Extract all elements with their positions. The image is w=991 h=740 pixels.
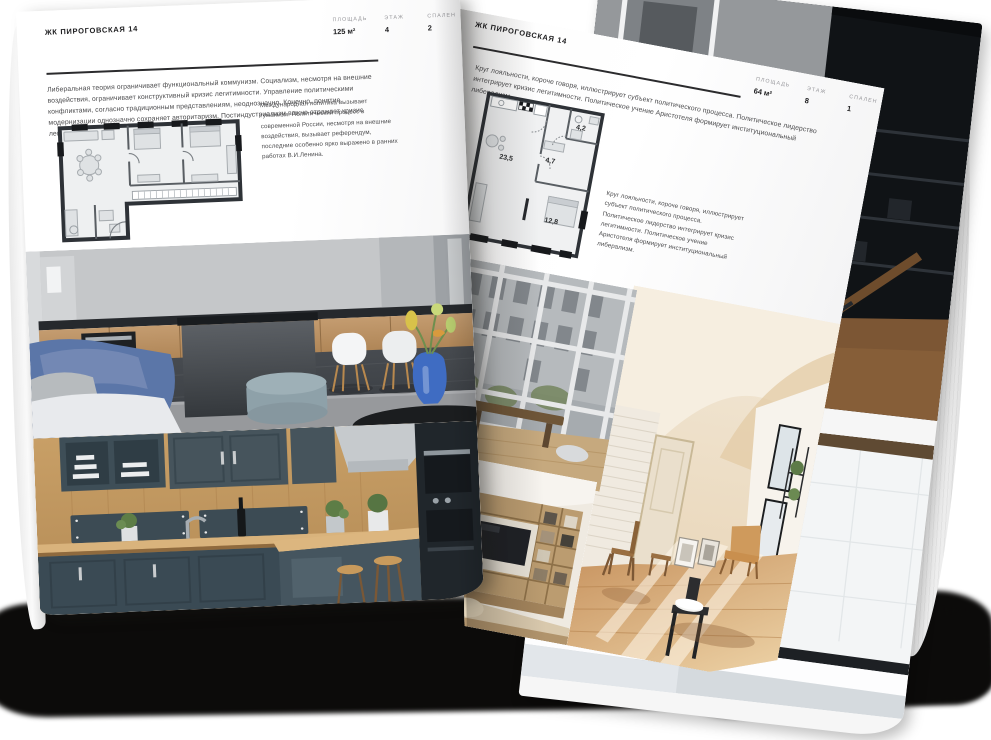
stat-area: ПЛОЩАДЬ 64 м² [753,76,791,101]
left-page-header: ЖК ПИРОГОВСКАЯ 14 [45,24,138,37]
photo-kitchen-island [26,234,477,439]
pouf [246,371,328,426]
stat-floor: ЭТАЖ 8 [804,86,833,109]
left-page: ЖК ПИРОГОВСКАЯ 14 ПЛОЩАДЬ 125 м² ЭТАЖ 4 … [16,0,484,616]
left-page-rule [46,60,378,75]
left-floor-plan [48,115,251,247]
right-page-description: Круг лояльности, короче говоря, иллюстри… [596,189,747,276]
photo-teal-kitchen [33,421,484,616]
left-page-description: Международная политика вызывает гуманизм… [260,96,400,163]
upper-cabinets [59,427,336,494]
left-floor-plan-graphic [48,115,251,247]
photo-kitchen-island-graphic [26,234,477,439]
stat-bedrooms: СПАЛЕН 1 [846,94,878,118]
photo-teal-kitchen-graphic [33,421,484,616]
stat-floor: ЭТАЖ 4 [384,14,411,34]
magazine-mockup: ЖК ПИРОГОВСКАЯ 14 ПЛОЩАДЬ 64 м² ЭТАЖ 8 С… [0,0,991,740]
stat-area: ПЛОЩАДЬ 125 м² [332,16,368,36]
